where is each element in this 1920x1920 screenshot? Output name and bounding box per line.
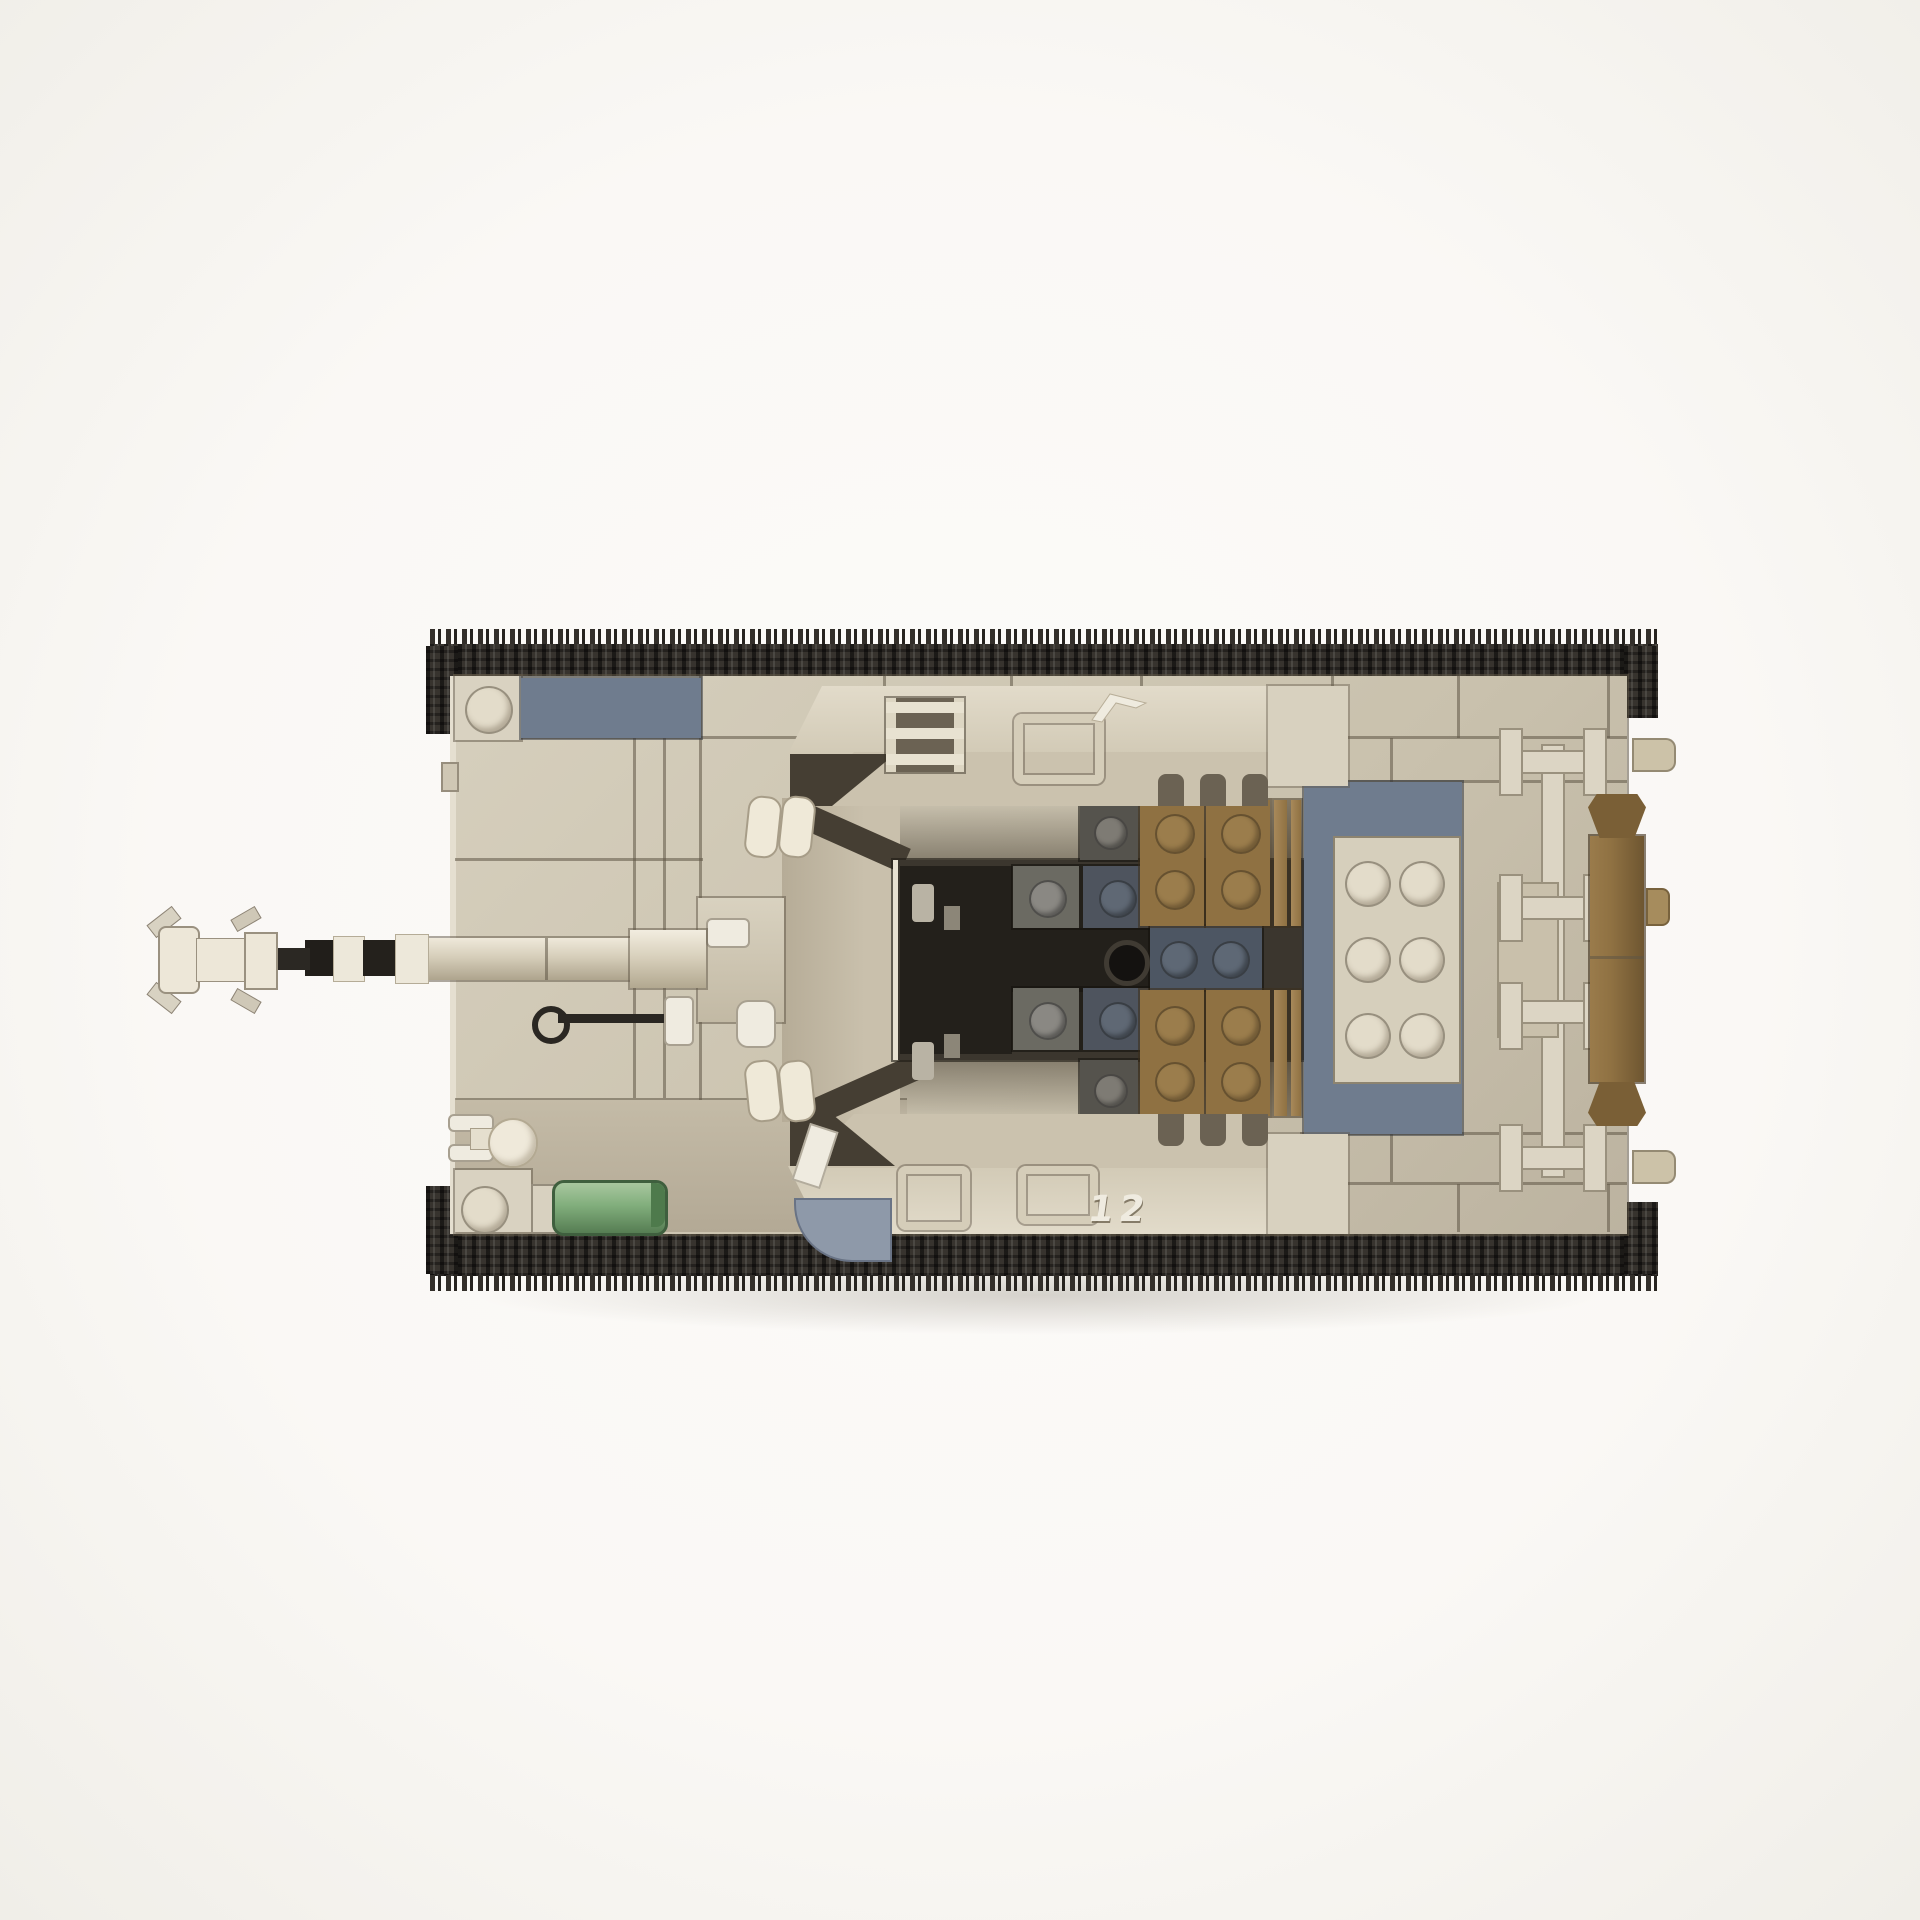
- fender-step-block: [1268, 1134, 1348, 1234]
- stud: [1221, 870, 1261, 910]
- seam: [1607, 1184, 1610, 1232]
- rear-bracket-tab: [1583, 728, 1607, 796]
- stud: [1029, 880, 1067, 918]
- antenna-rod: [558, 1014, 670, 1023]
- track-end-right-bottom: [1624, 1202, 1658, 1274]
- stud: [1345, 937, 1391, 983]
- barrel-stripe-dark: [363, 940, 395, 976]
- grille-rung: [886, 728, 964, 739]
- stud: [1399, 861, 1445, 907]
- pit-lever: [912, 1042, 934, 1080]
- fender-clamp: [898, 1166, 970, 1230]
- seam: [545, 938, 548, 980]
- muzzle-fin: [230, 988, 261, 1014]
- seam: [699, 676, 702, 1100]
- antenna-clip: [664, 996, 694, 1046]
- fender-scallop: [1158, 1114, 1184, 1146]
- barrel-sleeve: [630, 930, 706, 988]
- fender-scallop: [1158, 774, 1184, 806]
- rear-bracket-tab: [1499, 982, 1523, 1050]
- seam: [1300, 1182, 1627, 1185]
- muzzle-ring: [244, 932, 278, 990]
- stud: [1155, 870, 1195, 910]
- rear-bracket-tab: [1499, 1124, 1523, 1192]
- brown-rail: [1274, 990, 1287, 1116]
- pit-detail: [944, 1034, 960, 1058]
- rear-hook: [1632, 738, 1676, 772]
- fender-scallop: [1242, 774, 1268, 806]
- fender-step-block: [1268, 686, 1348, 786]
- seam: [1390, 1134, 1393, 1182]
- seam: [1457, 1184, 1460, 1232]
- stud: [1094, 1074, 1128, 1108]
- fender-scallop: [1200, 1114, 1226, 1146]
- track-end-right-top: [1624, 646, 1658, 718]
- seam: [633, 738, 636, 1098]
- pit-lever: [912, 884, 934, 922]
- muzzle-fin: [230, 906, 261, 932]
- brown-rail: [1291, 800, 1301, 926]
- stud: [1399, 937, 1445, 983]
- stud: [1155, 1006, 1195, 1046]
- stud: [1155, 814, 1195, 854]
- brown-rail: [1274, 800, 1287, 926]
- barrel-stripe-white: [395, 934, 429, 984]
- hull-front-tab: [441, 762, 459, 792]
- stud: [1099, 880, 1137, 918]
- stud: [1221, 814, 1261, 854]
- grille-rung: [886, 702, 964, 713]
- fender-scallop: [1200, 774, 1226, 806]
- chevron-marking: [1086, 690, 1162, 724]
- exhaust-hole: [1104, 940, 1150, 986]
- pit-detail: [944, 906, 960, 930]
- rear-hook: [1632, 1150, 1676, 1184]
- tool-knob: [488, 1118, 538, 1168]
- mantlet-collar: [706, 918, 750, 948]
- stud: [1160, 941, 1198, 979]
- beam-knob: [1646, 888, 1670, 926]
- fender-clamp: [1018, 1166, 1098, 1224]
- track-bottom: [430, 1232, 1658, 1276]
- barrel-stripe-white: [333, 936, 365, 982]
- track-teeth-bottom: [430, 1275, 1658, 1291]
- stud: [1155, 1062, 1195, 1102]
- fender-grille: [886, 698, 964, 772]
- stud: [1094, 816, 1128, 850]
- grille-rung: [886, 754, 964, 765]
- corner-stud: [465, 686, 513, 734]
- rear-bracket-tab: [1499, 874, 1523, 942]
- camo-log: [552, 1180, 668, 1236]
- seam: [1607, 676, 1610, 738]
- log-end-cap: [651, 1183, 665, 1227]
- muzzle-ring: [158, 926, 200, 994]
- track-teeth-top: [430, 629, 1658, 645]
- mantlet-knob: [736, 1000, 776, 1048]
- fender-clamp: [1014, 714, 1104, 784]
- hull-number-marking: 12: [1085, 1192, 1191, 1232]
- stud: [1029, 1002, 1067, 1040]
- blue-plate-top-front: [521, 678, 701, 738]
- muzzle-band: [196, 938, 246, 982]
- unditching-beam: [1590, 836, 1644, 1082]
- seam: [1590, 956, 1644, 959]
- seam: [1457, 676, 1460, 738]
- corner-stud: [461, 1186, 509, 1234]
- periscope: [777, 1058, 817, 1123]
- stud: [1212, 941, 1250, 979]
- periscope: [743, 1058, 783, 1123]
- antenna-ring: [532, 1006, 570, 1044]
- rear-bracket-tab: [1499, 728, 1523, 796]
- scene: 12: [0, 0, 1920, 1920]
- fender-scallop: [1242, 1114, 1268, 1146]
- stud: [1099, 1002, 1137, 1040]
- stud: [1345, 861, 1391, 907]
- stud: [1221, 1062, 1261, 1102]
- stud: [1345, 1013, 1391, 1059]
- seam: [1390, 738, 1393, 782]
- stud: [1221, 1006, 1261, 1046]
- stud: [1399, 1013, 1445, 1059]
- brown-rail: [1291, 990, 1301, 1116]
- rear-bracket-tab: [1583, 1124, 1607, 1192]
